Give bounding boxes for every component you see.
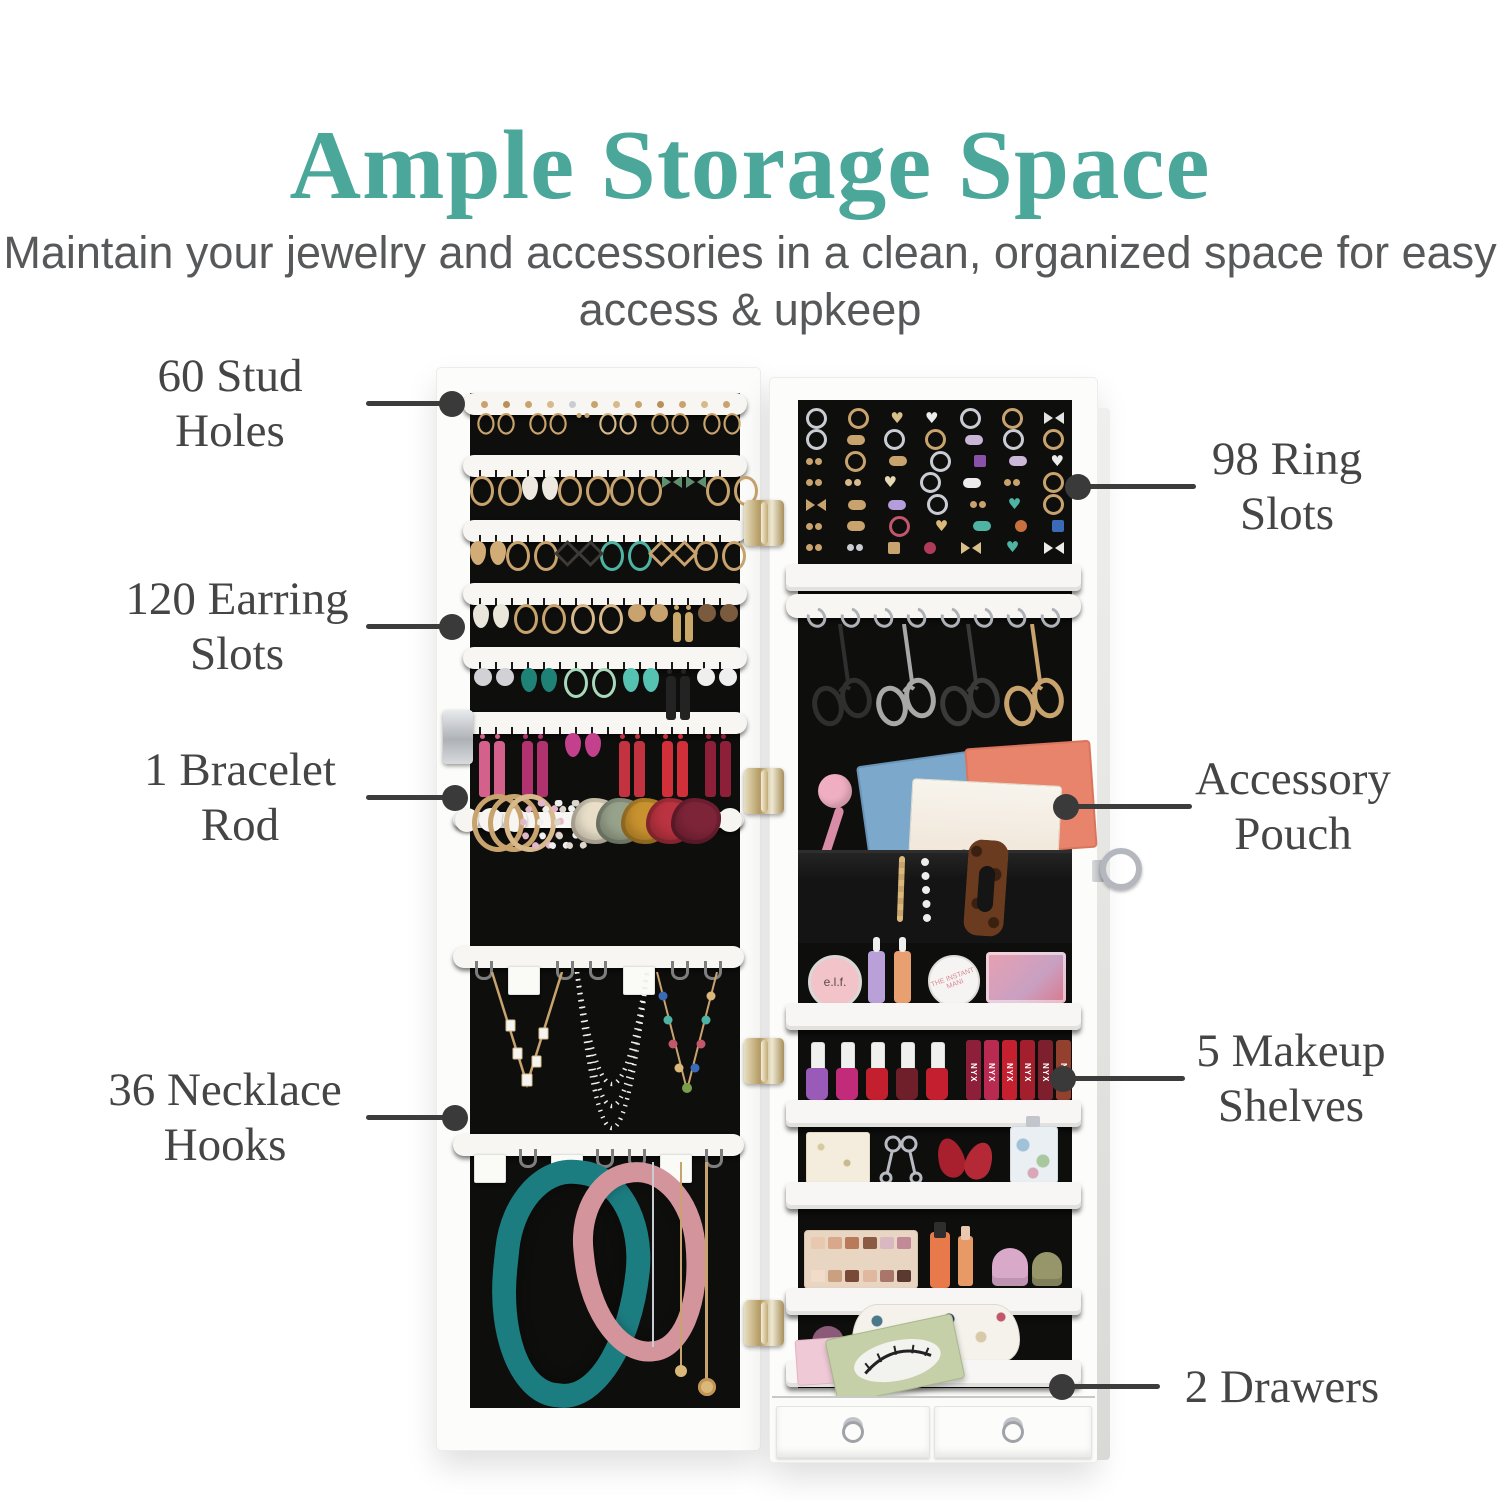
decor-icon (815, 458, 822, 465)
earring-pair-icon (697, 668, 737, 686)
earring-icon (473, 604, 489, 628)
earring-pair-icon (514, 604, 566, 634)
eyeshadow-swatch (863, 1237, 877, 1249)
leader-line-makeup-shelves (1063, 1076, 1185, 1081)
ring-icon (847, 521, 865, 531)
earring-icon (719, 668, 737, 686)
earring-icon (584, 413, 589, 418)
ring-icon: ♥ (1008, 497, 1021, 512)
stud-earring-icon (613, 401, 620, 408)
earring-icon (723, 413, 740, 435)
decor-icon (856, 544, 863, 551)
earring-pair-icon (600, 541, 652, 571)
earring-icon (585, 733, 601, 757)
nail-polish-icon (896, 1068, 918, 1100)
earring-icon (686, 476, 706, 488)
callout-text: Shelves (1151, 1079, 1431, 1134)
ring-icon (848, 408, 869, 429)
earring-icon (600, 541, 624, 571)
nail-polish-icon (806, 1068, 828, 1100)
ring-icon (806, 544, 822, 551)
earring-icon (697, 668, 715, 686)
ring-icon (848, 500, 866, 510)
ring-icon: ♥ (935, 519, 948, 534)
polish-lipstick-shelf: NYXNYXNYXNYXNYXNYX (770, 1042, 1097, 1100)
earring-pair-icon (610, 476, 662, 506)
earring-icon (592, 668, 616, 698)
callout-text: Slots (92, 627, 382, 682)
ring-icon (806, 458, 822, 465)
cabinet-left-door (437, 368, 760, 1450)
earring-pair-icon (521, 668, 557, 692)
serum-cap (899, 937, 906, 952)
bracelet-items (470, 788, 740, 854)
earring-pair-icon (662, 476, 706, 488)
callout-text: 36 Necklace (80, 1063, 370, 1118)
ring-icon (806, 408, 827, 429)
earring-icon (490, 541, 506, 565)
ring-icon (847, 435, 865, 445)
earring-icon (662, 476, 682, 488)
necklaces-graphic (482, 972, 722, 1144)
stud-earring-icon (503, 401, 510, 408)
serum-cap (873, 937, 880, 952)
earring-pair-icon (599, 413, 636, 435)
makeup-shelf-3 (786, 1182, 1081, 1209)
earring-pair-icon (473, 604, 509, 628)
earring-icon (496, 668, 514, 686)
lipstick-icon: NYX (966, 1040, 981, 1100)
earring-icon (619, 413, 636, 435)
earring-pair-icon (506, 541, 558, 571)
cabinet-side-face (1097, 408, 1110, 1460)
ring-icon (961, 542, 981, 554)
decor-icon (815, 544, 822, 551)
callout-text: 1 Bracelet (95, 743, 385, 798)
ring-icon (806, 499, 826, 511)
earring-pair-icon (666, 668, 690, 720)
bracelet-icon (671, 798, 721, 844)
makeup-shelf-1 (786, 1003, 1081, 1030)
serum-bottle-orange (894, 951, 911, 1003)
face-roller (818, 774, 852, 808)
decor-icon (806, 458, 813, 465)
earring-icon (477, 413, 494, 435)
earring-row (470, 604, 740, 648)
leader-line-ring-slots (1078, 484, 1196, 489)
ring-icon (1009, 456, 1027, 466)
earring-icon (522, 476, 538, 500)
earring-icon (497, 413, 514, 435)
earring-pair-icon (558, 541, 600, 563)
accessory-pouch (798, 850, 1072, 943)
nail-polish-icon (836, 1068, 858, 1100)
stud-earring-icon (547, 401, 554, 408)
earring-icon (599, 604, 623, 634)
earring-icon (610, 476, 634, 506)
earring-icon (564, 668, 588, 698)
ring-icon (1015, 520, 1027, 532)
earring-icon (474, 668, 492, 686)
blush-brand-text: e.l.f. (824, 975, 847, 989)
orange-gloss-cap (961, 1226, 970, 1240)
callout-earring-slots: 120 Earring Slots (92, 572, 382, 682)
eyeshadow-swatch (880, 1237, 894, 1249)
eyeshadow-swatch (845, 1270, 859, 1282)
ring-icon (924, 542, 936, 554)
callout-text: Accessory (1153, 752, 1433, 807)
hinge-icon (744, 500, 784, 546)
nail-polish-icon (841, 1042, 855, 1071)
ring-icon (973, 521, 991, 531)
necklace-bar-1 (453, 946, 744, 968)
ring-icon (806, 429, 827, 450)
earring-icon (514, 604, 538, 634)
ring-icon (925, 429, 946, 450)
stud-earring-icon (657, 401, 664, 408)
blush-compact: e.l.f. (808, 955, 862, 1009)
earring-pair-icon (470, 541, 506, 565)
drawer-left (776, 1406, 930, 1458)
eyeshadow-swatch (811, 1270, 825, 1282)
hinge-icon (744, 768, 784, 814)
earring-icon (493, 604, 509, 628)
orange-polish-cap (934, 1222, 946, 1238)
decor-icon (815, 479, 822, 486)
ring-icon (888, 542, 900, 554)
earring-pair-icon (652, 541, 694, 563)
makeup-palette-pink (986, 952, 1066, 1003)
stud-earring-icon (569, 401, 576, 408)
ring-icon (1043, 472, 1064, 493)
earring-icon (542, 604, 566, 634)
ring-icon (960, 408, 981, 429)
leader-dot-bracelet-rod (442, 785, 468, 811)
tortoise-clip-hole (976, 865, 995, 912)
ring-icon (1052, 520, 1064, 532)
callout-text: Slots (1147, 487, 1427, 542)
earring-pair-icon (698, 604, 738, 622)
ring-icon (930, 451, 951, 472)
ring-row: ♥♥ (806, 408, 1064, 428)
earring-icon (703, 413, 720, 435)
earring-icon (534, 541, 558, 571)
eyeshadow-swatch (897, 1237, 911, 1249)
decor-icon (1004, 479, 1011, 486)
ring-icon: ♥ (890, 411, 903, 426)
earring-bar-3 (463, 583, 747, 605)
earring-icon (549, 413, 566, 435)
ring-icon (1044, 542, 1064, 554)
earring-row (470, 668, 740, 720)
stud-earring-icon (525, 401, 532, 408)
leader-line-drawers (1062, 1384, 1160, 1389)
earring-icon (577, 413, 582, 418)
eyeshadow-palette (804, 1230, 918, 1289)
ring-row: ♥ (806, 495, 1064, 515)
mani-tin: THE INSTANT MANI (928, 955, 980, 1007)
sunglasses-icon (1002, 624, 1066, 755)
ring-icon (920, 472, 941, 493)
chain-necklace (680, 1162, 682, 1367)
stud-earring-icon (481, 401, 488, 408)
mani-tin-text: THE INSTANT MANI (929, 966, 979, 996)
callout-necklace-hooks: 36 Necklace Hooks (80, 1063, 370, 1173)
earring-icon (470, 476, 494, 506)
stud-row (473, 393, 737, 415)
earring-icon (685, 612, 693, 642)
earring-icon (521, 668, 537, 692)
ring-icon (1004, 479, 1020, 486)
eyeshadow-swatch (811, 1237, 825, 1249)
earring-icon (506, 541, 530, 571)
label-tag (474, 1154, 506, 1183)
ring-icon (970, 501, 986, 508)
callout-bracelet-rod: 1 Bracelet Rod (95, 743, 385, 853)
decor-icon (854, 479, 861, 486)
earring-pair-icon (565, 733, 601, 757)
ring-icon: ♥ (1006, 540, 1019, 555)
ring-icon: ♥ (884, 475, 897, 490)
earring-pair-icon (703, 413, 740, 435)
earring-row (470, 413, 740, 453)
ring-icon (806, 523, 822, 530)
sunglasses-icon (810, 624, 874, 755)
cabinet-knob (1100, 848, 1142, 890)
lipstick-icon: NYX (1038, 1040, 1053, 1100)
earring-icon (498, 476, 522, 506)
ring-slot-grid: ♥♥♥♥♥♥♥ (806, 408, 1064, 558)
lipstick-icon: NYX (1020, 1040, 1035, 1100)
hinge-icon (744, 1038, 784, 1084)
leader-dot-ring-slots (1065, 474, 1091, 500)
callout-text: 98 Ring (1147, 432, 1427, 487)
earring-pair-icon (477, 413, 514, 435)
earring-pair-icon (577, 413, 590, 418)
callout-text: Pouch (1153, 807, 1433, 862)
ring-icon (806, 479, 822, 486)
decor-icon (1013, 479, 1020, 486)
nail-polish-icon (811, 1042, 825, 1071)
leader-dot-accessory-pouch (1053, 794, 1079, 820)
hinge-icon (744, 1300, 784, 1346)
ring-icon (845, 451, 866, 472)
perfume-bottle (1010, 1126, 1058, 1184)
ring-icon (888, 500, 906, 510)
earring-pair-icon (628, 604, 668, 622)
stud-earring-icon (635, 401, 642, 408)
callout-text: 60 Stud (85, 349, 375, 404)
serum-bottle-purple (868, 951, 885, 1003)
earring-icon (680, 676, 690, 720)
ring-icon (927, 494, 948, 515)
ring-icon: ♥ (925, 411, 938, 426)
ring-icon (965, 435, 983, 445)
callout-text: 5 Makeup (1151, 1024, 1431, 1079)
earring-icon (571, 604, 595, 634)
chain-necklace (705, 1162, 708, 1380)
callout-drawers: 2 Drawers (1142, 1360, 1422, 1415)
perfume-cap (1026, 1116, 1040, 1127)
earring-icon (529, 413, 546, 435)
earring-icon (541, 668, 557, 692)
earring-pair-icon (564, 668, 616, 698)
stud-earring-icon (591, 401, 598, 408)
earring-icon (542, 476, 558, 500)
drawer-pull (1002, 1421, 1024, 1443)
earring-pair-icon (571, 604, 623, 634)
sunglasses-icon (874, 624, 938, 755)
nail-polish-icon (901, 1042, 915, 1071)
earring-pair-icon (522, 476, 558, 500)
ring-icon (1043, 429, 1064, 450)
lash-curler-icon (878, 1134, 924, 1184)
ring-icon (1003, 429, 1024, 450)
ring-icon (889, 516, 910, 537)
earring-icon (671, 413, 688, 435)
callout-makeup-shelves: 5 Makeup Shelves (1151, 1024, 1431, 1134)
stud-bar (463, 393, 747, 415)
ring-icon (1002, 408, 1023, 429)
decor-icon (815, 523, 822, 530)
drawer-zone (772, 1396, 1095, 1462)
ring-icon (847, 544, 863, 551)
orange-polish (930, 1232, 950, 1288)
ring-row (806, 430, 1064, 450)
earring-icon (673, 612, 681, 642)
cabinet-right-panel: ♥♥♥♥♥♥♥ avatara e.l.f. THE INSTANT MANI (770, 378, 1097, 1462)
eyeshadow-swatch (828, 1237, 842, 1249)
callout-text: 120 Earring (92, 572, 382, 627)
eyeshadow-swatch (845, 1237, 859, 1249)
necklace-hook-row (467, 1134, 730, 1156)
earring-icon (470, 541, 486, 565)
leader-line-accessory-pouch (1066, 804, 1192, 809)
necklace-hook-row (467, 946, 730, 968)
door-lock (443, 710, 473, 764)
earring-pair-icon (623, 668, 659, 692)
ring-icon (1044, 412, 1064, 424)
ring-row: ♥ (806, 473, 1064, 493)
earring-bar-2 (463, 520, 747, 542)
eyeshadow-swatch (828, 1270, 842, 1282)
eyeshadow-grid (811, 1237, 911, 1282)
hook-row (800, 594, 1067, 618)
leader-dot-necklace-hooks (442, 1105, 468, 1131)
chain-necklace (652, 1162, 654, 1347)
decor-icon (979, 501, 986, 508)
earring-icon (628, 541, 652, 571)
earring-pair-icon (558, 476, 610, 506)
leader-dot-stud-holes (439, 391, 465, 417)
earring-pair-icon (694, 541, 746, 571)
earring-pair-icon (529, 413, 566, 435)
claw-clip-olive (1032, 1252, 1062, 1286)
earring-pair-icon (474, 668, 514, 686)
earring-icon (651, 413, 668, 435)
leader-dot-drawers (1049, 1374, 1075, 1400)
decor-icon (806, 479, 813, 486)
earring-icon (565, 733, 581, 757)
nail-polish-icon (931, 1042, 945, 1071)
orange-gloss (958, 1236, 973, 1286)
callout-stud-holes: 60 Stud Holes (85, 349, 375, 459)
ring-row: ♥ (806, 538, 1064, 558)
ring-row: ♥ (806, 516, 1064, 536)
page-title: Ample Storage Space (0, 114, 1500, 218)
ring-icon (1043, 494, 1064, 515)
earring-row (470, 541, 740, 585)
earring-pair-icon (651, 413, 688, 435)
ring-icon (889, 456, 907, 466)
nail-polish-icon (866, 1068, 888, 1100)
page-subtitle: Maintain your jewelry and accessories in… (0, 225, 1500, 338)
drawer-right (934, 1406, 1092, 1458)
leader-dot-earring-slots (439, 614, 465, 640)
ring-icon (963, 478, 981, 488)
decor-icon (970, 501, 977, 508)
callout-text: Hooks (80, 1118, 370, 1173)
earring-icon (586, 476, 610, 506)
infographic-root: Ample Storage Space Maintain your jewelr… (0, 0, 1500, 1500)
earring-icon (722, 541, 746, 571)
earring-icon (720, 604, 738, 622)
subtitle-line-1: Maintain your jewelry and accessories in… (3, 227, 981, 278)
chain-pendant (698, 1378, 716, 1396)
callout-accessory-pouch: Accessory Pouch (1153, 752, 1433, 862)
floral-box (806, 1132, 870, 1184)
earring-icon (706, 476, 730, 506)
ring-icon: ♥ (1050, 454, 1063, 469)
drawer-pull (842, 1421, 864, 1443)
decor-icon (845, 479, 852, 486)
earring-row (470, 476, 740, 520)
claw-clip-pink (992, 1248, 1028, 1286)
earring-icon (558, 476, 582, 506)
earring-icon (666, 676, 676, 720)
earring-icon (694, 541, 718, 571)
earring-pair-icon (470, 476, 522, 506)
decor-icon (847, 544, 854, 551)
ring-icon (845, 479, 861, 486)
lipstick-icon: NYX (984, 1040, 999, 1100)
callout-text: 2 Drawers (1142, 1360, 1422, 1415)
decor-icon (806, 523, 813, 530)
sunglasses-area (800, 624, 1066, 754)
earring-pair-icon (673, 604, 693, 642)
eyeshadow-swatch (897, 1270, 911, 1282)
eyeshadow-swatch (863, 1270, 877, 1282)
stud-earring-icon (701, 401, 708, 408)
callout-text: Holes (85, 404, 375, 459)
chain-pendant (675, 1365, 687, 1377)
earring-icon (698, 604, 716, 622)
earring-bar-4 (463, 647, 747, 669)
callout-text: Rod (95, 798, 385, 853)
earring-icon (599, 413, 616, 435)
earring-icon (638, 476, 662, 506)
necklace-hook-icon (519, 1149, 537, 1168)
accessory-hook-bar (786, 594, 1081, 618)
earring-icon (643, 668, 659, 692)
sunglasses-icon (938, 624, 1002, 755)
necklace-bar-2 (453, 1134, 744, 1156)
ring-icon (974, 455, 986, 467)
nail-polish-icon (926, 1068, 948, 1100)
ring-shelf-divider (786, 564, 1081, 591)
stud-earring-icon (679, 401, 686, 408)
nail-polish-icon (871, 1042, 885, 1071)
